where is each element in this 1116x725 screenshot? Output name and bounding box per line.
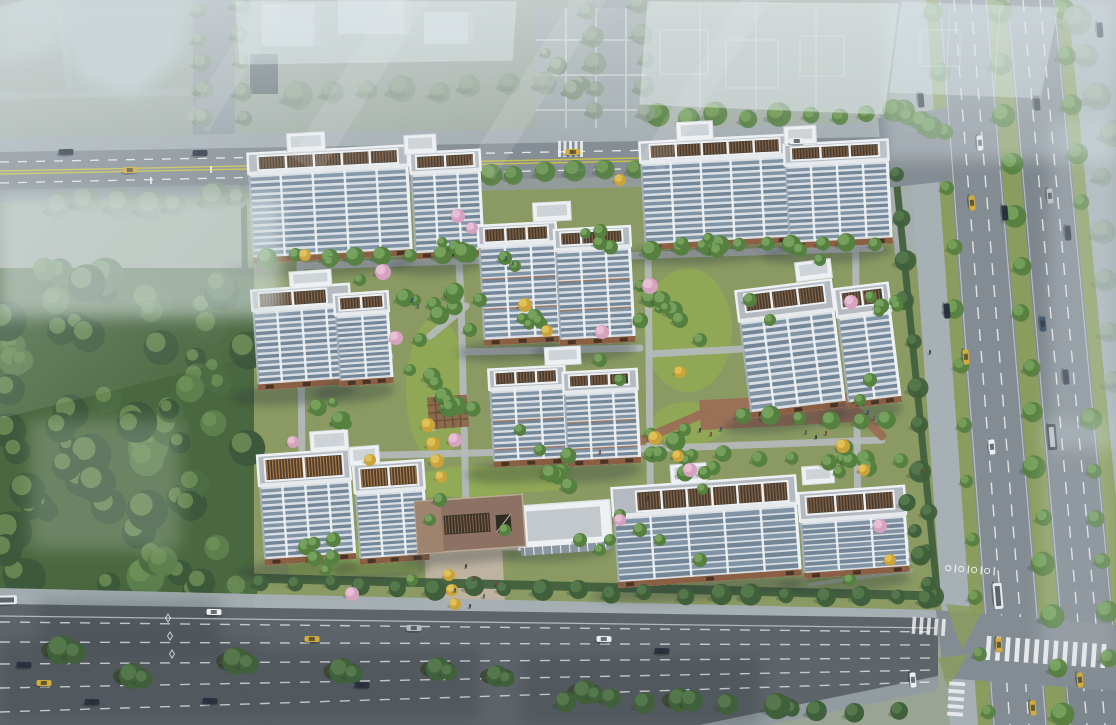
forest-light-patch bbox=[30, 420, 180, 550]
person bbox=[867, 410, 869, 414]
louver-slat bbox=[814, 148, 815, 158]
tree-highlight bbox=[855, 395, 862, 402]
tree-highlight bbox=[1024, 456, 1038, 470]
taxi-yellow bbox=[35, 680, 52, 688]
tree-highlight bbox=[817, 237, 825, 245]
louver-slat bbox=[853, 146, 854, 156]
louver-slat bbox=[699, 144, 700, 155]
entrance-door bbox=[626, 582, 634, 587]
tree-highlight bbox=[308, 552, 317, 561]
entrance-door bbox=[378, 379, 386, 384]
clubhouse-mullion bbox=[534, 547, 535, 555]
tree-highlight bbox=[649, 432, 657, 440]
tree-highlight bbox=[465, 577, 477, 589]
car-windshield bbox=[964, 354, 969, 360]
tree-highlight bbox=[891, 590, 900, 599]
tree-highlight bbox=[289, 577, 298, 586]
tree-highlight bbox=[818, 589, 830, 601]
tree-highlight bbox=[594, 354, 602, 362]
tree-highlight bbox=[761, 237, 769, 245]
tree-highlight bbox=[694, 334, 702, 342]
gate-canopy-light bbox=[414, 500, 444, 554]
louver-slat bbox=[811, 148, 812, 158]
tree-highlight bbox=[678, 589, 688, 599]
louver-slat bbox=[829, 147, 830, 157]
louver-slat bbox=[796, 149, 797, 159]
louver-slat bbox=[862, 145, 863, 155]
tree-highlight bbox=[450, 599, 457, 606]
clubhouse-roof-panel bbox=[526, 506, 602, 541]
louver-slat bbox=[696, 144, 697, 155]
tree-highlight bbox=[615, 515, 622, 522]
louver-slat bbox=[747, 141, 748, 152]
tree-highlight bbox=[425, 515, 432, 522]
entrance-door bbox=[706, 576, 714, 581]
tree-highlight bbox=[310, 400, 320, 410]
tree-highlight bbox=[919, 591, 930, 602]
louver-slat bbox=[771, 140, 772, 151]
clubhouse-mullion bbox=[543, 546, 544, 554]
louver-slat bbox=[738, 142, 739, 153]
tree-highlight bbox=[845, 575, 852, 582]
tree-highlight bbox=[907, 335, 916, 344]
entrance-door bbox=[620, 337, 628, 341]
sedan-silver bbox=[405, 625, 422, 633]
entrance-door bbox=[348, 381, 356, 386]
person bbox=[873, 416, 875, 420]
person bbox=[710, 432, 712, 436]
tree-highlight bbox=[519, 299, 527, 307]
entrance-door bbox=[575, 461, 583, 465]
louver-slat bbox=[705, 144, 706, 155]
tree-highlight bbox=[405, 365, 412, 372]
tree-highlight bbox=[515, 425, 522, 432]
tree-highlight bbox=[783, 236, 794, 247]
person bbox=[929, 350, 931, 354]
tree-highlight bbox=[967, 533, 975, 541]
tree-highlight bbox=[444, 401, 452, 409]
louver-slat bbox=[793, 149, 794, 159]
louver-slat bbox=[544, 371, 545, 381]
tree-highlight bbox=[891, 703, 902, 714]
tree-highlight bbox=[712, 585, 725, 598]
tree-highlight bbox=[1013, 305, 1023, 315]
person bbox=[805, 430, 807, 434]
louver-slat bbox=[841, 146, 842, 156]
tree-highlight bbox=[326, 551, 335, 560]
tree-highlight bbox=[859, 465, 866, 472]
entrance-door bbox=[594, 339, 602, 343]
tree-highlight bbox=[969, 591, 978, 600]
architectural-rendering: Aerial bird's-eye architectural renderin… bbox=[0, 0, 1116, 725]
louver-slat bbox=[823, 147, 824, 157]
entrance-door bbox=[266, 384, 274, 389]
entrance-door bbox=[853, 570, 861, 575]
louver-slat bbox=[521, 373, 522, 383]
tree-highlight bbox=[487, 666, 500, 679]
louver-slat bbox=[847, 146, 848, 156]
tree-highlight bbox=[682, 691, 695, 704]
tree-highlight bbox=[426, 580, 439, 593]
tree-highlight bbox=[874, 307, 880, 313]
tree-highlight bbox=[321, 565, 328, 572]
tree-highlight bbox=[542, 326, 549, 333]
louver-slat bbox=[720, 143, 721, 154]
tree-highlight bbox=[643, 279, 653, 289]
tree-highlight bbox=[329, 398, 335, 404]
sedan-dark bbox=[353, 682, 370, 690]
entrance-door bbox=[812, 573, 820, 578]
tree-highlight bbox=[500, 525, 507, 532]
louver-slat bbox=[844, 146, 845, 156]
entrance-door bbox=[546, 337, 554, 341]
penthouse-roof bbox=[314, 433, 345, 448]
tree-highlight bbox=[673, 313, 683, 323]
louver-slat bbox=[685, 145, 686, 156]
forest-tree-highlight bbox=[211, 374, 224, 387]
tree-highlight bbox=[699, 467, 707, 475]
sedan-white bbox=[205, 609, 222, 617]
louver-slat bbox=[762, 141, 763, 152]
tree-highlight bbox=[948, 240, 958, 250]
tree-highlight bbox=[807, 701, 819, 713]
louver-slat bbox=[777, 140, 778, 151]
tree-highlight bbox=[912, 547, 924, 559]
tree-highlight bbox=[736, 409, 746, 419]
tree-highlight bbox=[711, 244, 720, 253]
louver-slat bbox=[688, 144, 689, 155]
tree-highlight bbox=[786, 453, 794, 461]
tree-highlight bbox=[679, 424, 687, 432]
tree-highlight bbox=[741, 585, 754, 598]
tree-highlight bbox=[557, 693, 569, 705]
louver-slat bbox=[877, 145, 878, 155]
tree-highlight bbox=[894, 210, 905, 221]
louver-slat bbox=[741, 142, 742, 153]
entrance-door bbox=[600, 460, 608, 464]
tree-highlight bbox=[684, 464, 692, 472]
louver-slat bbox=[679, 145, 680, 156]
tree-highlight bbox=[634, 524, 642, 532]
sedan-dark bbox=[83, 699, 100, 707]
entrance-door bbox=[501, 462, 509, 466]
tree-highlight bbox=[635, 281, 642, 288]
bus-white bbox=[0, 595, 17, 606]
louver-slat bbox=[874, 145, 875, 155]
tree-highlight bbox=[637, 585, 647, 595]
louver-slat bbox=[541, 371, 542, 381]
louver-slat bbox=[744, 142, 745, 153]
tree-highlight bbox=[912, 417, 922, 427]
tree-highlight bbox=[733, 238, 741, 246]
tree-highlight bbox=[224, 648, 241, 665]
car-windshield bbox=[911, 677, 916, 683]
tree-highlight bbox=[635, 693, 648, 706]
tree-highlight bbox=[852, 587, 864, 599]
tree-highlight bbox=[500, 672, 509, 681]
tree-highlight bbox=[921, 504, 931, 514]
forest-tree-highlight bbox=[5, 440, 20, 455]
tree-highlight bbox=[752, 452, 762, 462]
louver-slat bbox=[768, 140, 769, 151]
car-windshield bbox=[945, 308, 950, 314]
louver-slat bbox=[717, 143, 718, 154]
forest-tree-highlight bbox=[189, 571, 205, 587]
forest-tree-highlight bbox=[150, 549, 166, 565]
tree-highlight bbox=[414, 334, 422, 342]
person bbox=[599, 450, 601, 454]
bus-windows bbox=[0, 597, 14, 602]
louver-slat bbox=[799, 149, 800, 159]
louver-slat bbox=[817, 148, 818, 158]
entrance-door bbox=[272, 559, 280, 564]
tree-highlight bbox=[779, 589, 788, 598]
tree-highlight bbox=[661, 303, 668, 310]
tree-highlight bbox=[574, 681, 588, 695]
car-windshield bbox=[1003, 210, 1008, 216]
person bbox=[825, 431, 827, 435]
louver-slat bbox=[735, 142, 736, 153]
entrance-door bbox=[625, 458, 633, 462]
clubhouse-mullion bbox=[551, 546, 552, 554]
entrance-door bbox=[568, 340, 576, 344]
louver-slat bbox=[518, 373, 519, 383]
entrance-door bbox=[894, 567, 902, 572]
tree-highlight bbox=[525, 320, 531, 326]
tree-highlight bbox=[838, 234, 849, 245]
louver-slat bbox=[832, 147, 833, 157]
fog-streak bbox=[1048, 120, 1116, 450]
tree-highlight bbox=[885, 555, 892, 562]
tree-highlight bbox=[864, 374, 872, 382]
tree-highlight bbox=[823, 412, 834, 423]
tree-highlight bbox=[66, 644, 79, 657]
car-windshield bbox=[359, 683, 365, 687]
entrance-door bbox=[527, 460, 535, 464]
tree-highlight bbox=[332, 412, 342, 422]
tree-highlight bbox=[605, 535, 612, 542]
tree-highlight bbox=[441, 664, 451, 674]
clubhouse-mullion bbox=[587, 543, 588, 551]
tree-highlight bbox=[961, 475, 969, 483]
tree-highlight bbox=[427, 658, 441, 672]
tree-highlight bbox=[1024, 403, 1036, 415]
louver-slat bbox=[868, 145, 869, 155]
tree-highlight bbox=[434, 494, 442, 502]
tree-highlight bbox=[892, 300, 899, 307]
tree-highlight bbox=[422, 419, 430, 427]
louver-slat bbox=[694, 144, 695, 155]
forest-tree-highlight bbox=[161, 400, 172, 411]
louver-slat bbox=[729, 142, 730, 153]
louver-slat bbox=[532, 372, 533, 382]
tree-highlight bbox=[497, 582, 506, 591]
tree-highlight bbox=[667, 433, 679, 445]
louver-slat bbox=[826, 147, 827, 157]
tree-highlight bbox=[331, 659, 347, 675]
tree-highlight bbox=[815, 255, 822, 262]
louver-slat bbox=[835, 147, 836, 157]
tree-highlight bbox=[890, 168, 899, 177]
tree-highlight bbox=[879, 412, 890, 423]
tree-highlight bbox=[697, 484, 704, 491]
tree-highlight bbox=[136, 671, 147, 682]
tree-highlight bbox=[909, 378, 922, 391]
tree-highlight bbox=[562, 479, 572, 489]
forest-tree-highlight bbox=[232, 433, 252, 453]
tree-highlight bbox=[561, 448, 571, 458]
tree-highlight bbox=[896, 251, 909, 264]
louver-slat bbox=[529, 372, 530, 382]
tree-highlight bbox=[365, 455, 372, 462]
forest-tree-highlight bbox=[227, 576, 245, 594]
tree-highlight bbox=[390, 581, 400, 591]
tree-highlight bbox=[533, 580, 546, 593]
person bbox=[465, 564, 467, 568]
louver-slat bbox=[750, 141, 751, 152]
fog-streak bbox=[1040, 420, 1116, 660]
tree-highlight bbox=[982, 706, 991, 715]
tree-highlight bbox=[543, 465, 554, 476]
tree-highlight bbox=[869, 238, 877, 246]
louver-slat bbox=[691, 144, 692, 155]
clubhouse-mullion bbox=[560, 545, 561, 553]
louver-slat bbox=[765, 140, 766, 151]
louver-slat bbox=[512, 373, 513, 383]
louver-slat bbox=[856, 146, 857, 156]
louver-slat bbox=[553, 371, 554, 381]
tree-highlight bbox=[974, 648, 983, 657]
tree-highlight bbox=[308, 537, 316, 545]
tree-highlight bbox=[909, 525, 917, 533]
car-windshield bbox=[970, 200, 975, 206]
tree-highlight bbox=[464, 324, 472, 332]
louver-slat bbox=[503, 373, 504, 383]
person bbox=[483, 594, 485, 598]
tree-highlight bbox=[718, 695, 731, 708]
entrance-door bbox=[363, 380, 371, 385]
tree-highlight bbox=[654, 292, 664, 302]
person bbox=[454, 588, 456, 592]
tree-highlight bbox=[430, 377, 439, 386]
car-windshield bbox=[990, 444, 995, 450]
car-windshield bbox=[1041, 321, 1046, 327]
tree-highlight bbox=[766, 694, 782, 710]
sedan-white bbox=[788, 138, 805, 146]
penthouse-roof bbox=[548, 349, 576, 360]
tree-highlight bbox=[837, 440, 845, 448]
tree-highlight bbox=[326, 576, 335, 585]
louver-slat bbox=[714, 143, 715, 154]
tree-highlight bbox=[794, 412, 802, 420]
forest-tree-highlight bbox=[202, 412, 216, 426]
forest-tree-highlight bbox=[12, 475, 32, 495]
louver-slat bbox=[808, 148, 809, 158]
tree-highlight bbox=[346, 588, 354, 596]
tree-highlight bbox=[854, 414, 864, 424]
tree-highlight bbox=[1024, 360, 1035, 371]
entrance-door bbox=[340, 555, 348, 560]
garden-path bbox=[650, 349, 742, 354]
sedan-dark bbox=[653, 648, 670, 656]
person bbox=[473, 576, 475, 580]
tree-highlight bbox=[588, 687, 598, 697]
tree-highlight bbox=[570, 581, 582, 593]
tree-highlight bbox=[874, 520, 882, 528]
scene-canvas: Aerial bird's-eye architectural renderin… bbox=[0, 0, 1116, 725]
tree-highlight bbox=[1049, 659, 1060, 670]
tree-highlight bbox=[431, 455, 439, 463]
person bbox=[815, 435, 817, 439]
tree-highlight bbox=[121, 664, 137, 680]
louver-slat bbox=[802, 149, 803, 159]
tree-highlight bbox=[602, 689, 614, 701]
tree-highlight bbox=[673, 451, 680, 458]
fog-streak bbox=[0, 196, 280, 316]
car-windshield bbox=[794, 139, 800, 143]
louver-slat bbox=[859, 146, 860, 156]
car-windshield bbox=[89, 700, 95, 704]
louver-slat bbox=[497, 374, 498, 384]
entrance-door bbox=[368, 559, 376, 564]
tree-highlight bbox=[449, 434, 457, 442]
taxi-yellow bbox=[303, 636, 320, 644]
tree-highlight bbox=[794, 244, 802, 252]
tree-highlight bbox=[633, 314, 642, 323]
tree-highlight bbox=[288, 437, 295, 444]
tree-highlight bbox=[240, 655, 252, 667]
tree-highlight bbox=[447, 585, 454, 592]
louver-slat bbox=[547, 371, 548, 381]
car-windshield bbox=[1078, 677, 1083, 683]
forest-tree-highlight bbox=[178, 376, 194, 392]
tree-highlight bbox=[327, 533, 336, 542]
tree-highlight bbox=[694, 554, 702, 562]
forest-tree-highlight bbox=[206, 537, 220, 551]
louver-slat bbox=[711, 143, 712, 154]
person bbox=[921, 468, 923, 472]
car-windshield bbox=[1031, 705, 1036, 711]
tree-highlight bbox=[894, 454, 903, 463]
tree-highlight bbox=[900, 495, 910, 505]
entrance-door bbox=[303, 382, 311, 387]
tree-highlight bbox=[444, 570, 451, 577]
tree-highlight bbox=[390, 332, 398, 340]
louver-slat bbox=[500, 374, 501, 384]
tree-highlight bbox=[703, 233, 710, 240]
sedan-dark bbox=[201, 698, 218, 706]
louver-slat bbox=[509, 373, 510, 383]
tree-highlight bbox=[653, 447, 662, 456]
louver-slat bbox=[756, 141, 757, 152]
forest-tree-highlight bbox=[99, 574, 112, 587]
tree-highlight bbox=[765, 315, 772, 322]
tree-highlight bbox=[533, 315, 540, 322]
louver-slat bbox=[805, 148, 806, 158]
car-windshield bbox=[309, 637, 315, 641]
louver-slat bbox=[526, 372, 527, 382]
louver-slat bbox=[708, 143, 709, 154]
tree-highlight bbox=[845, 296, 853, 304]
entrance-door bbox=[519, 339, 527, 343]
person bbox=[699, 428, 701, 432]
person bbox=[469, 604, 471, 608]
tree-highlight bbox=[822, 456, 831, 465]
car-windshield bbox=[659, 649, 665, 653]
louver-slat bbox=[871, 145, 872, 155]
tree-highlight bbox=[535, 445, 542, 452]
tree-highlight bbox=[517, 314, 524, 321]
